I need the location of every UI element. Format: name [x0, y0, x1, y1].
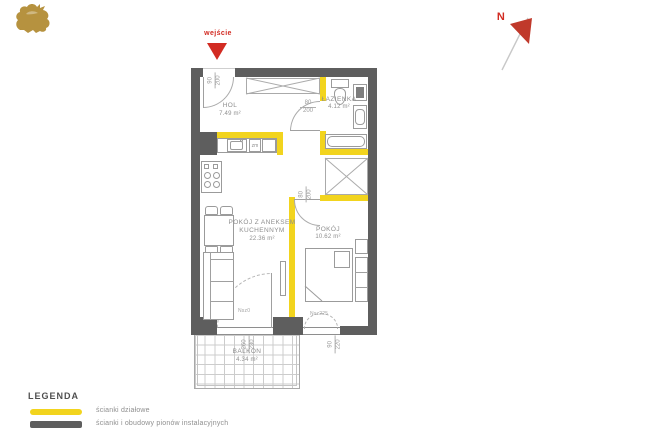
bathroom-sink-basin	[355, 109, 365, 125]
partition-bathroom-bottom	[320, 149, 368, 155]
stove-knob-left	[204, 164, 209, 169]
chair	[220, 206, 233, 215]
stove-burner-2	[213, 172, 220, 179]
wall-right	[368, 68, 377, 335]
hol-area: 7.49 m²	[208, 111, 252, 118]
living-name-line2: KUCHENNYM	[232, 227, 292, 235]
wall-bottom-right	[340, 326, 377, 335]
bedroom-dresser	[355, 257, 368, 302]
bedroom-door-dimension: 80 200	[299, 186, 314, 202]
sofa-cushion-line	[210, 281, 234, 282]
nightstand	[355, 239, 368, 254]
living-balcony-door-leaf	[271, 273, 272, 328]
legend-label-partition: ścianki działowe	[96, 407, 150, 414]
entrance-door-dimension: 90 200	[208, 72, 223, 88]
stove-burner-4	[213, 181, 220, 188]
wall-top	[235, 68, 377, 77]
living-balcony-door-dimension: 260 230	[242, 335, 257, 353]
griffin-logo	[12, 2, 56, 34]
kitchen-sink-basin	[230, 141, 243, 150]
floorplan-page: N wejście	[0, 0, 653, 435]
sofa-cushion-line	[210, 259, 234, 260]
living-area: 22.36 m²	[240, 236, 284, 243]
bedroom-wardrobe-diagonals	[325, 158, 368, 195]
sofa	[203, 252, 234, 320]
entrance-label: wejście	[196, 30, 240, 38]
dresser-drawer-line	[355, 272, 368, 273]
entrance-threshold	[203, 68, 235, 69]
bed-pillow	[334, 251, 350, 268]
stove-burner-3	[204, 181, 211, 188]
bathroom-door-leaf	[290, 130, 320, 131]
bathtub-inner	[327, 136, 365, 147]
wall-bottom-center-pier	[273, 317, 303, 335]
bedroom-area: 10.62 m²	[306, 234, 350, 241]
legend-title: LEGENDA	[28, 391, 79, 401]
partition-bedroom-top	[320, 195, 368, 201]
bathroom-area: 4.12 m²	[322, 104, 356, 111]
kitchen-faucet	[240, 139, 243, 142]
bathroom-door-dimension: 80 200	[300, 100, 316, 115]
wall-kitchen-shaft	[191, 132, 217, 155]
sofa-cushion-line	[210, 301, 234, 302]
entrance-arrow-icon	[207, 43, 227, 60]
chair	[205, 206, 218, 215]
partition-kitchen-end	[277, 132, 283, 155]
bedroom-window-type: Nsz225	[310, 311, 328, 317]
living-balcony-door-frame	[217, 327, 273, 335]
bed-blanket-fold	[305, 286, 323, 302]
legend-label-structural: ścianki i obudowy pionów instalacyjnych	[96, 420, 228, 427]
partition-living-bedroom	[289, 197, 295, 317]
living-balcony-door-type: Nsz0	[238, 308, 250, 314]
legend-swatch-partition	[30, 409, 82, 415]
bathroom-name: ŁAZIENKA	[317, 96, 361, 104]
hol-name: HOL	[210, 102, 250, 110]
bedroom-window-dimension: 90 220	[328, 335, 343, 353]
stove-burner-1	[204, 172, 211, 179]
tv	[280, 261, 286, 296]
wall-top-left	[191, 68, 203, 77]
legend-swatch-structural	[30, 421, 82, 428]
toilet-tank	[331, 79, 349, 88]
living-name-line1: POKÓJ Z ANEKSEM	[222, 219, 302, 227]
entrance-door-leaf	[203, 77, 204, 108]
sofa-backrest-line	[210, 252, 211, 320]
balcony-area: 4.34 m²	[225, 357, 269, 364]
wall-left	[191, 68, 200, 335]
kitchen-dishwasher: zm	[249, 139, 261, 152]
stove-knob-right	[213, 164, 218, 169]
kitchen-fridge	[262, 139, 276, 152]
compass-needle-icon	[488, 8, 538, 76]
dresser-drawer-line	[355, 287, 368, 288]
bedroom-name: POKÓJ	[308, 226, 348, 234]
hall-wardrobe-diagonals	[246, 78, 320, 94]
